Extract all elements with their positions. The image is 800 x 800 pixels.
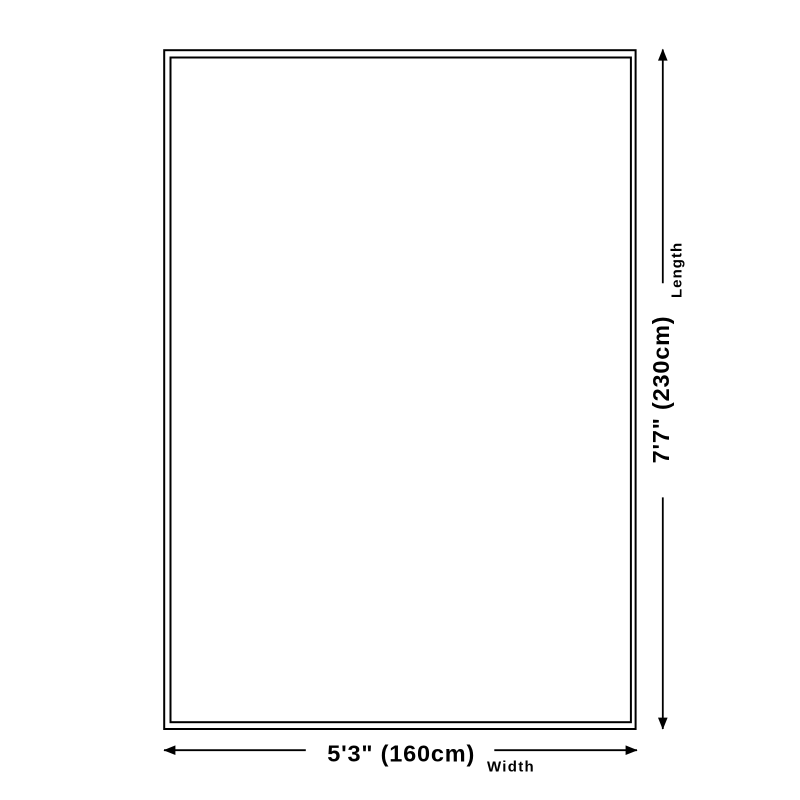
svg-text:5'3" (160cm): 5'3" (160cm) bbox=[327, 741, 475, 767]
svg-text:7'7" (230cm): 7'7" (230cm) bbox=[648, 316, 674, 464]
svg-text:Length: Length bbox=[669, 242, 686, 298]
svg-text:Width: Width bbox=[487, 759, 535, 776]
